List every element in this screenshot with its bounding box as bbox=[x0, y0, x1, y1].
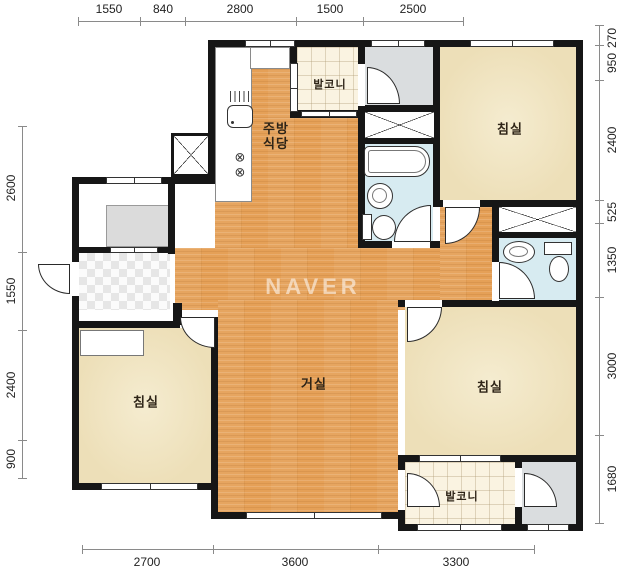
kitchen-sink-icon bbox=[227, 105, 253, 128]
dim-tick bbox=[18, 330, 27, 331]
naver-watermark: NAVER bbox=[265, 274, 360, 300]
bedroom2-window bbox=[101, 483, 198, 490]
balcony2-window bbox=[417, 524, 502, 531]
bedroom-bottom-left-label: 침실 bbox=[133, 392, 159, 411]
dim-line-left bbox=[22, 126, 23, 478]
dim-right-1: 270 bbox=[605, 28, 619, 48]
bedroom1-window bbox=[470, 40, 554, 47]
dim-line-top bbox=[78, 21, 463, 22]
bathtub bbox=[364, 146, 430, 177]
faucet-icon bbox=[230, 91, 251, 102]
stove-burner-icon: ⊗ bbox=[235, 166, 246, 179]
dim-bottom-3: 3300 bbox=[443, 555, 470, 569]
closet-right-x bbox=[496, 204, 579, 235]
wall-left bbox=[72, 177, 79, 490]
roomA-window bbox=[106, 177, 162, 184]
dim-top-3: 2800 bbox=[227, 2, 254, 16]
dim-tick bbox=[595, 45, 604, 46]
wardrobe bbox=[80, 330, 144, 356]
dim-bottom-2: 3600 bbox=[282, 555, 309, 569]
dim-tick bbox=[595, 223, 604, 224]
dim-tick bbox=[595, 523, 604, 524]
dim-tick bbox=[363, 17, 364, 26]
dim-tick bbox=[213, 545, 214, 554]
dim-tick bbox=[82, 545, 83, 554]
dim-tick bbox=[534, 545, 535, 554]
toilet-top-tank bbox=[362, 214, 372, 240]
dim-left-1: 2600 bbox=[4, 175, 18, 202]
dim-tick bbox=[78, 17, 79, 26]
balcony1-window bbox=[301, 111, 357, 117]
living-room-floor bbox=[218, 300, 398, 512]
storage-cabinet bbox=[106, 205, 172, 247]
washbasin-right bbox=[503, 241, 535, 263]
balcony-top-label: 발코니 bbox=[313, 76, 346, 92]
toilet-top-bowl bbox=[372, 215, 396, 240]
dim-right-4: 525 bbox=[605, 202, 619, 222]
dim-left-3: 2400 bbox=[4, 372, 18, 399]
dim-right-5: 1350 bbox=[605, 247, 619, 274]
entry-door-opening bbox=[72, 262, 79, 296]
dim-tick bbox=[463, 17, 464, 26]
kitchen-label: 주방 식당 bbox=[263, 121, 289, 151]
duct-shaft-x bbox=[171, 133, 211, 177]
dim-right-3: 2400 bbox=[605, 127, 619, 154]
dim-tick bbox=[18, 440, 27, 441]
bath2-door-opening bbox=[492, 262, 499, 301]
balcony2-door-opening bbox=[398, 470, 405, 510]
dim-top-2: 840 bbox=[153, 2, 173, 16]
utility2-door-opening bbox=[515, 468, 522, 507]
utility1-window bbox=[371, 40, 425, 47]
entry-door-arc bbox=[38, 264, 70, 294]
dim-top-4: 1500 bbox=[317, 2, 344, 16]
dim-line-right bbox=[599, 25, 600, 523]
dim-left-4: 900 bbox=[4, 449, 18, 469]
dim-left-2: 1550 bbox=[4, 278, 18, 305]
dim-tick bbox=[18, 252, 27, 253]
dim-tick bbox=[378, 545, 379, 554]
dim-line-bottom bbox=[82, 549, 534, 550]
dim-tick bbox=[18, 478, 27, 479]
dim-right-2: 950 bbox=[605, 53, 619, 73]
dim-bottom-1: 2700 bbox=[134, 555, 161, 569]
bedroom1-door-opening bbox=[443, 200, 480, 207]
washbasin-top bbox=[367, 183, 393, 209]
dim-tick bbox=[595, 297, 604, 298]
kitchen-label-line1: 주방 bbox=[263, 121, 289, 136]
roomA-opening bbox=[110, 247, 158, 253]
dim-right-6: 3000 bbox=[605, 353, 619, 380]
dim-right-7: 1680 bbox=[605, 466, 619, 493]
dim-tick bbox=[18, 126, 27, 127]
entry-hall-floor bbox=[79, 253, 170, 310]
kitchen-window bbox=[245, 40, 295, 47]
dim-top-1: 1550 bbox=[96, 2, 123, 16]
dim-tick bbox=[595, 80, 604, 81]
utility1-door-opening bbox=[358, 64, 365, 106]
wall-roomA-divider bbox=[168, 177, 175, 254]
bedroom-bottom-right-label: 침실 bbox=[477, 377, 503, 396]
kitchen-label-line2: 식당 bbox=[263, 136, 289, 151]
bedroom3-door-opening bbox=[405, 300, 442, 307]
living-window bbox=[246, 512, 382, 519]
balcony-bottom-label: 발코니 bbox=[445, 488, 478, 504]
dim-tick bbox=[185, 17, 186, 26]
dim-tick bbox=[595, 200, 604, 201]
dim-tick bbox=[595, 25, 604, 26]
bedroom-top-right-label: 침실 bbox=[497, 119, 523, 138]
dim-tick bbox=[595, 435, 604, 436]
closet-top-x bbox=[362, 109, 437, 141]
balcony1-door-opening bbox=[290, 63, 298, 112]
toilet-right-tank bbox=[544, 242, 572, 255]
wall-bedroom2-top bbox=[72, 321, 180, 328]
bath1-door-opening bbox=[392, 241, 430, 248]
dim-top-5: 2500 bbox=[400, 2, 427, 16]
dim-tick bbox=[140, 17, 141, 26]
utility2-window bbox=[527, 524, 569, 531]
stove-burner-icon: ⊗ bbox=[235, 151, 246, 164]
bedroom3-balcony-window bbox=[419, 455, 501, 462]
toilet-right-bowl bbox=[549, 256, 569, 282]
floor-plan: ⊗ ⊗ 발코니 주방 식당 침실 침실 침실 거실 발코니 NAVER 1550… bbox=[0, 0, 627, 577]
living-room-label: 거실 bbox=[301, 374, 327, 393]
dim-tick bbox=[296, 17, 297, 26]
kitchen-upper-cabinet bbox=[250, 47, 290, 69]
